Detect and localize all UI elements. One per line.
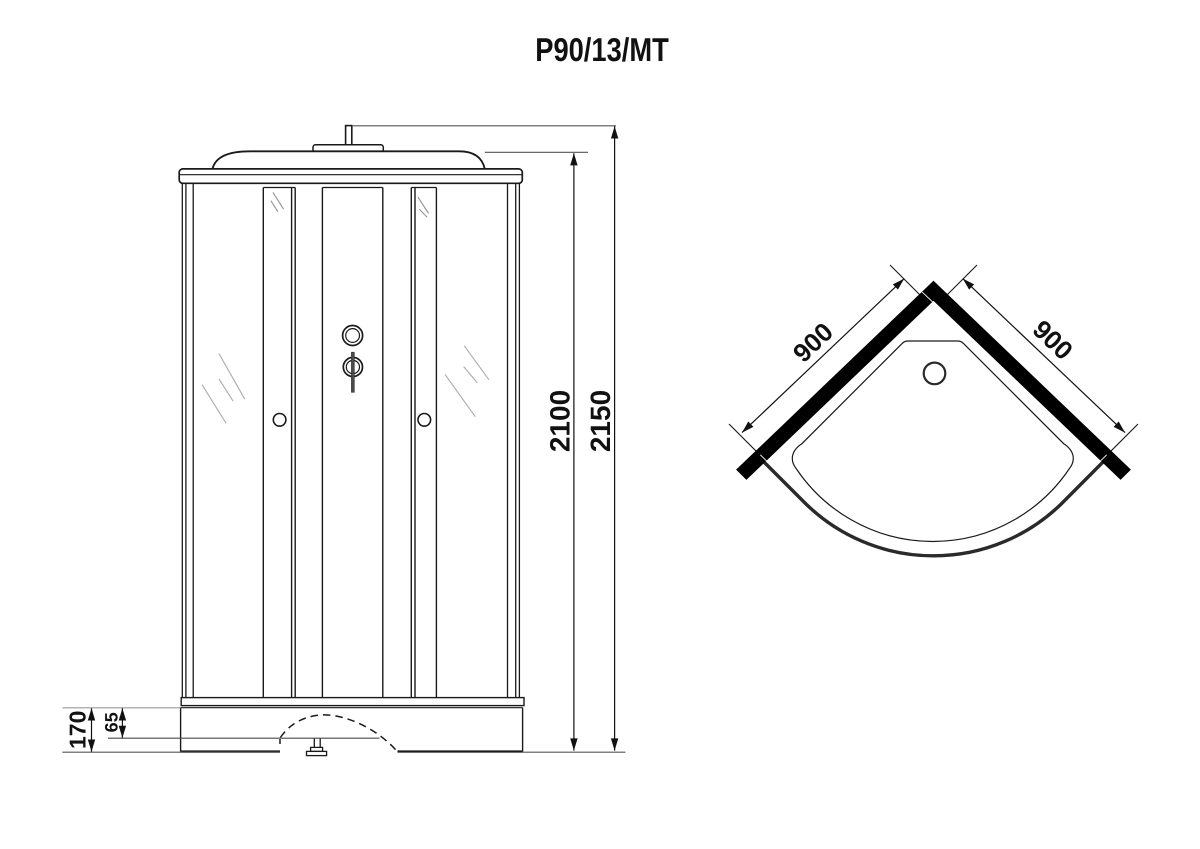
svg-text:P90/13/MT: P90/13/MT bbox=[535, 31, 669, 68]
svg-text:2100: 2100 bbox=[544, 390, 575, 452]
svg-text:170: 170 bbox=[65, 711, 91, 749]
svg-text:65: 65 bbox=[102, 712, 122, 732]
svg-text:2150: 2150 bbox=[585, 390, 616, 452]
